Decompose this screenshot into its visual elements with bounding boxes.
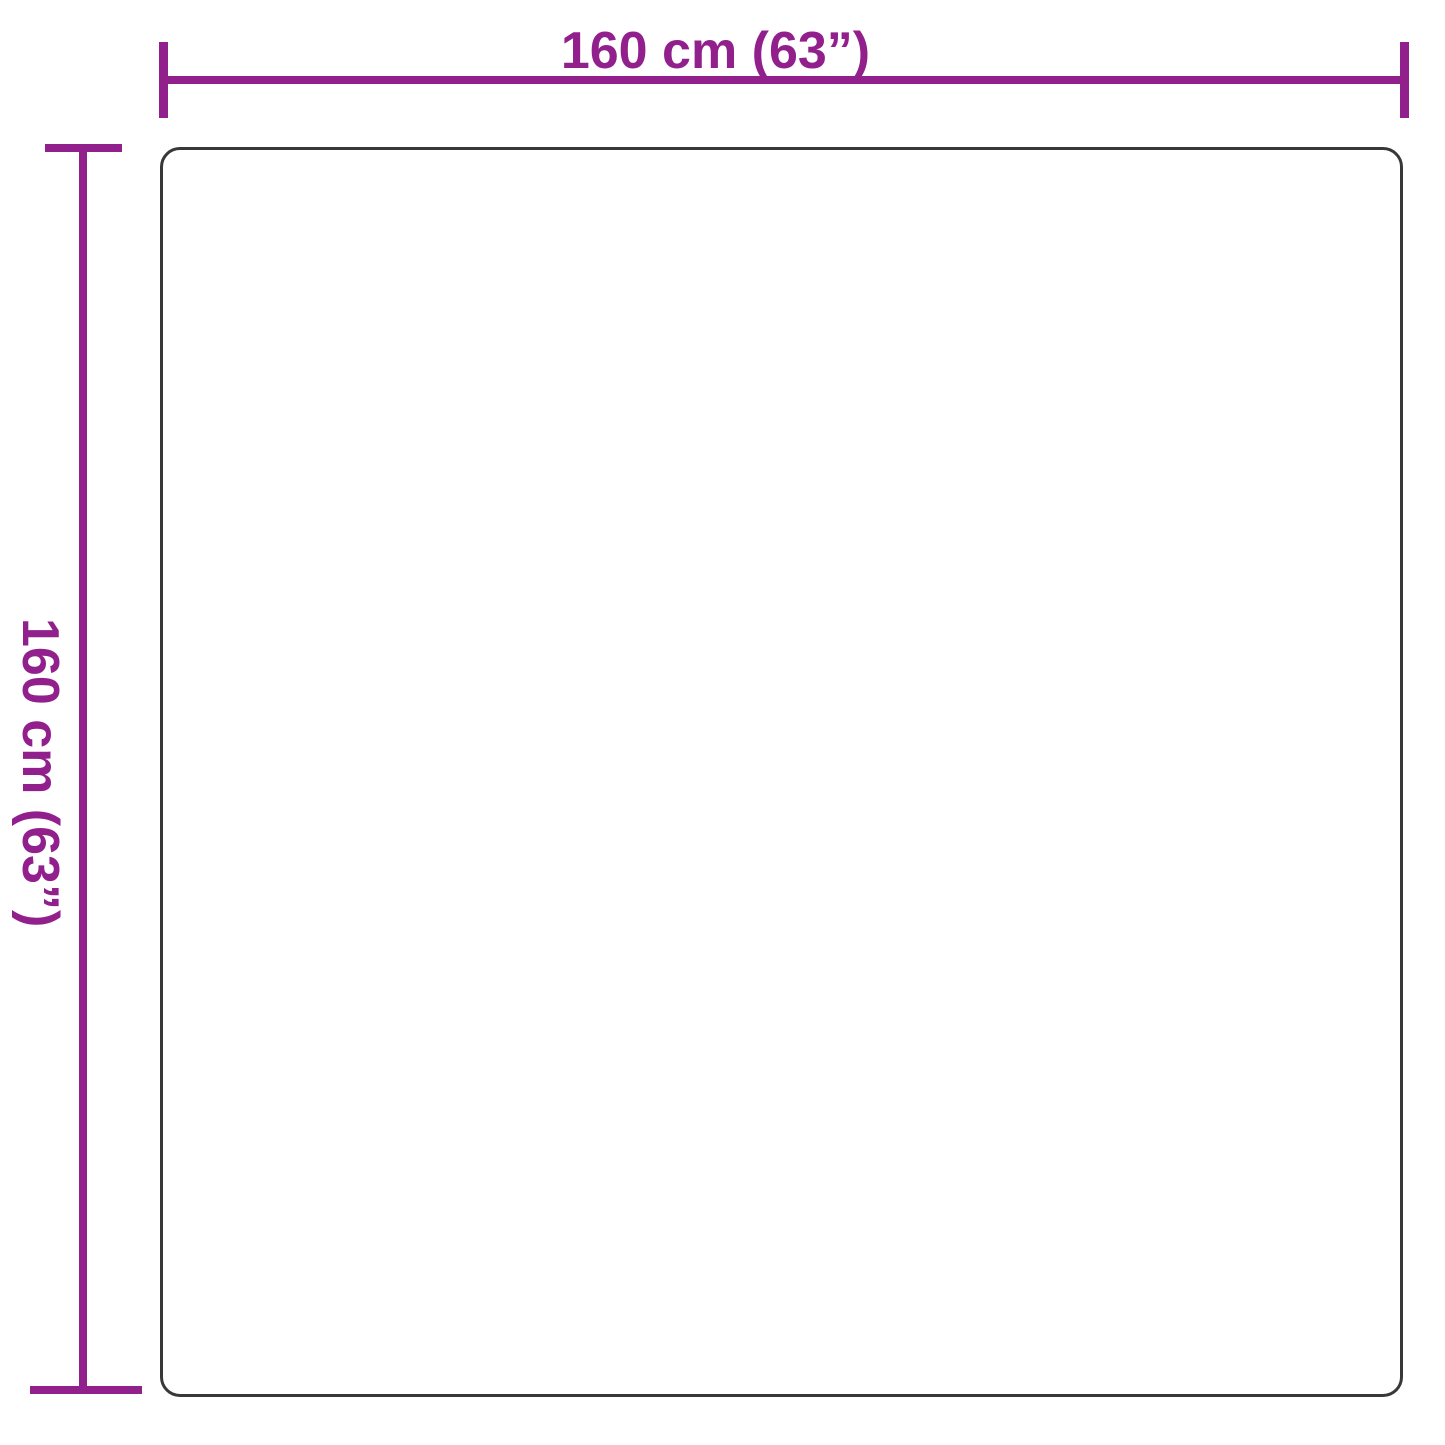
height-dimension-line	[79, 148, 87, 1390]
width-dimension-line	[163, 76, 1405, 84]
height-dimension-cap-bottom	[30, 1386, 142, 1394]
width-dimension-label: 160 cm (63”)	[0, 25, 1431, 77]
height-dimension-label: 160 cm (63”)	[14, 618, 66, 918]
dimension-diagram: 160 cm (63”) 160 cm (63”)	[0, 0, 1445, 1445]
width-dimension-cap-right	[1400, 42, 1409, 118]
product-outline	[160, 147, 1403, 1397]
height-dimension-cap-top	[45, 144, 122, 152]
width-dimension-cap-left	[159, 42, 168, 118]
